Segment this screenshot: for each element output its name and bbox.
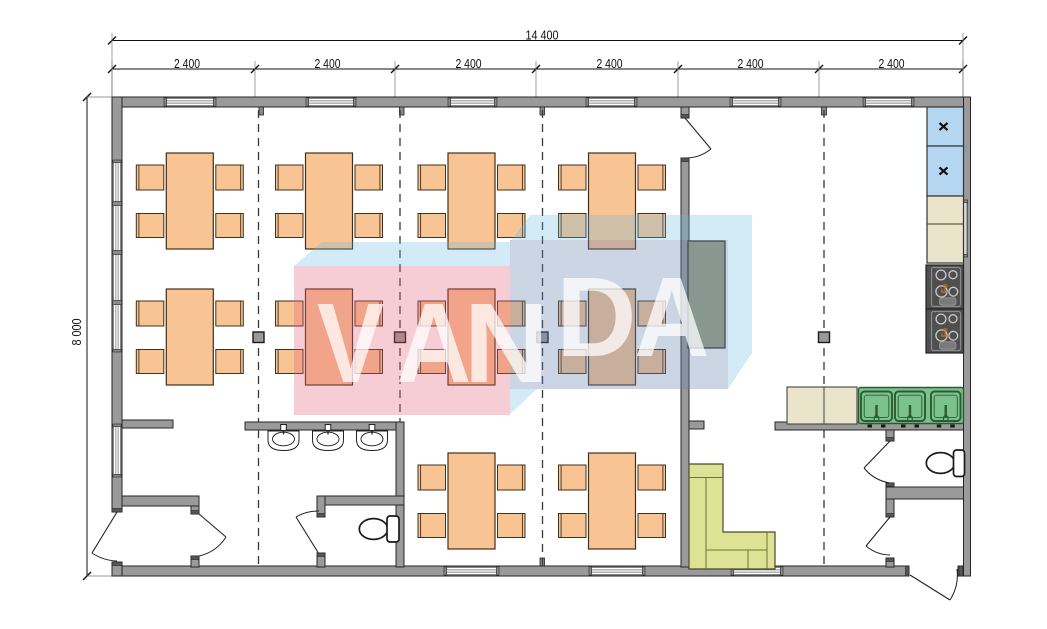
svg-text:A: A [396, 281, 471, 407]
svg-text:2 400: 2 400 [738, 57, 764, 71]
svg-text:2 400: 2 400 [456, 57, 482, 71]
svg-text:2 400: 2 400 [879, 57, 905, 71]
svg-text:8 000: 8 000 [69, 319, 84, 346]
svg-text:Fe: Fe [941, 327, 950, 337]
svg-text:Fe: Fe [941, 283, 950, 293]
svg-text:2 400: 2 400 [174, 57, 200, 71]
svg-text:2 400: 2 400 [597, 57, 623, 71]
svg-text:V: V [317, 280, 384, 407]
svg-text:2 400: 2 400 [315, 57, 341, 71]
svg-text:A: A [634, 255, 709, 381]
svg-text:N: N [464, 280, 549, 406]
svg-text:D: D [556, 253, 636, 380]
svg-text:14 400: 14 400 [526, 28, 559, 43]
